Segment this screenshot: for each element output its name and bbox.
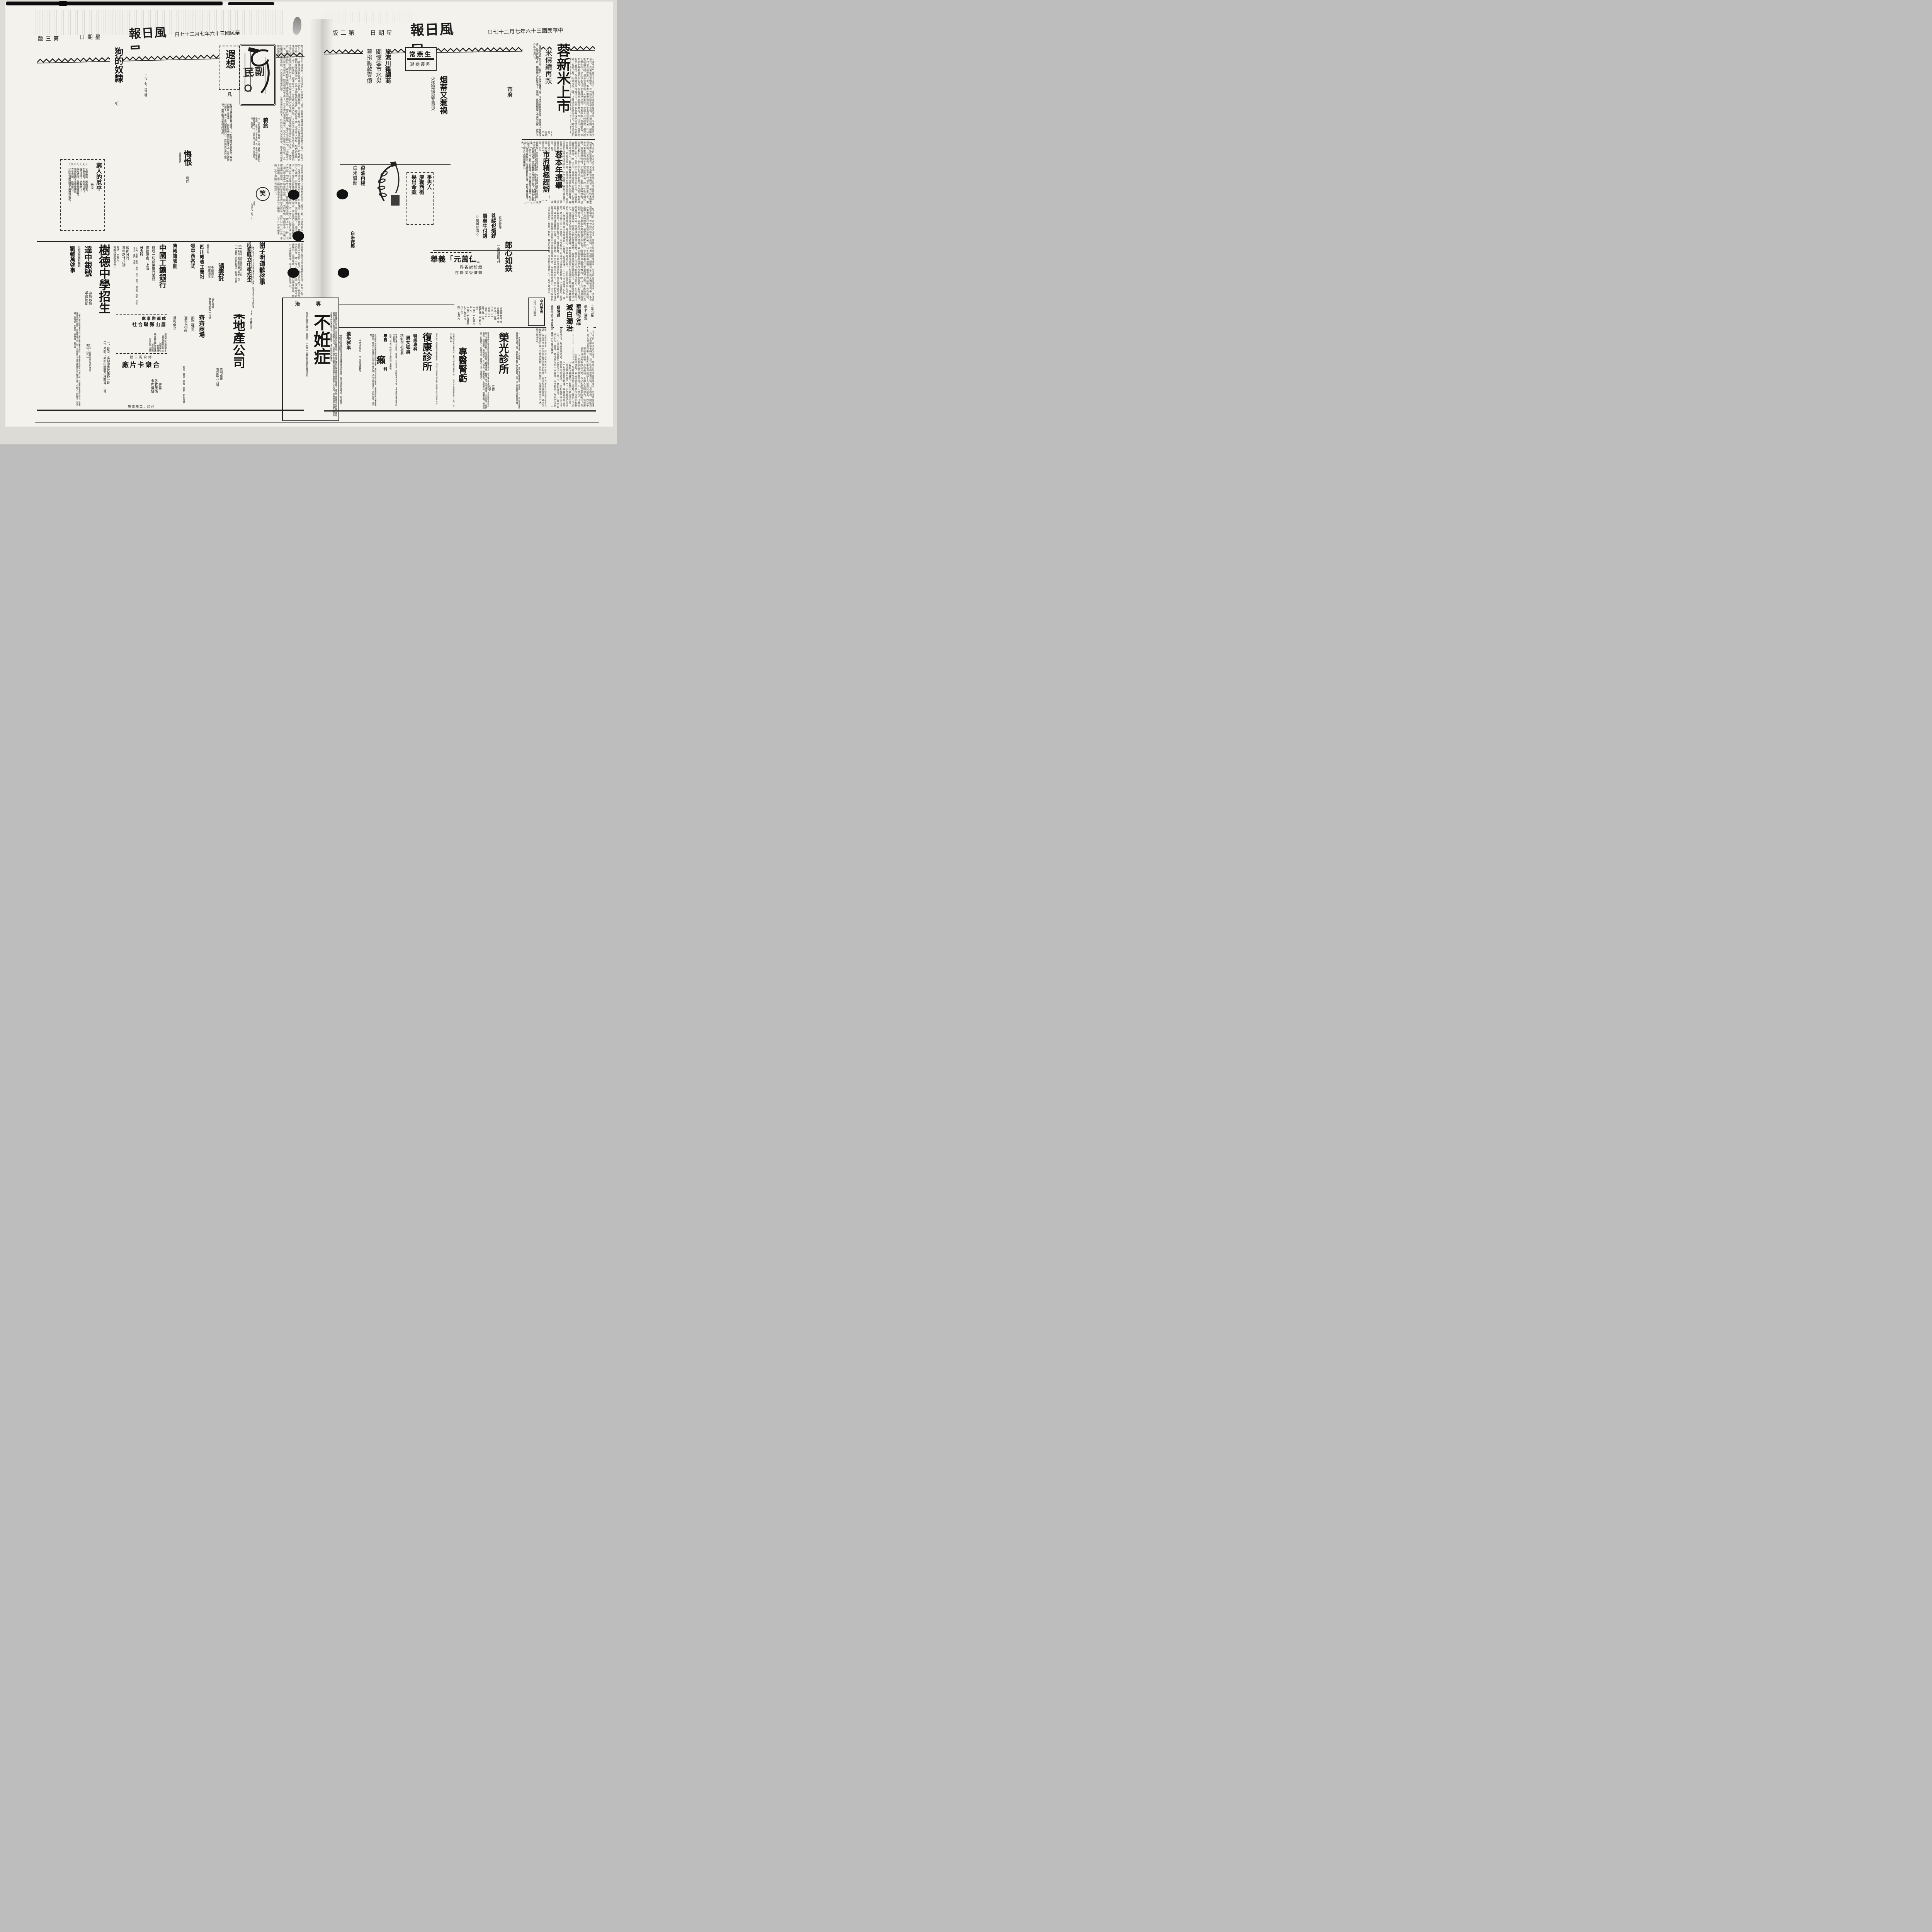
lost-notice-title: 遺失啓事 (342, 332, 351, 370)
page-number-left-text: 版三第 (38, 36, 61, 42)
cimb-branches-label: 分支行 (138, 246, 143, 269)
county-school-title: 成都縣立中學招生 (242, 242, 251, 315)
qiqi-mall-title: 齊齊商場 (196, 315, 205, 359)
fukang-clinic-title: 復康診所 (420, 332, 432, 410)
essay-author: 凡 (225, 92, 232, 101)
supplement-logo: 民副 (240, 44, 276, 106)
dazhong-bank-address: 行址：總府街拾號附壹號 電話：四六一 (80, 344, 91, 406)
punch-hole (337, 189, 348, 199)
murder-story-box: 爭男人 廖雲西街 幾出命案 (406, 172, 434, 225)
lai-ad-address: 中西順城街一二七號伯康醫院 (355, 339, 361, 407)
medicine-ad-sellers: 總府街太平洋大藥房 鹽市口生生大藥房 (546, 305, 553, 406)
infertility-ad-title: 不姙症 (308, 314, 330, 409)
kidney-ad-prices: 元轉強砂丸每瓶九千元每打六瓶外購樂加一 九包全愈此每包一千元 古方白帶丹 (447, 333, 454, 409)
lai-ad-label-2: 科 (381, 367, 387, 376)
scan-smudge-blob (58, 1, 68, 6)
essay-body: 斜陽塗抹着黃昏的殘塔，人影兒與塔影兒相伴。無雲的獨自立在江干，塔影兒不閃悄然在江… (209, 104, 232, 162)
dazhong-bank-title: 達中銀號 (80, 246, 92, 285)
liu-notice-title: 劉輔萬啓事 (66, 246, 75, 310)
liu-notice-body: 一種凡患牙腰腎漏五症，漏症無不藥到病除，其治漏症為敝人特為介紹，凡患斯疾者渴往試… (65, 312, 80, 406)
rongguang-clinic-title: 榮光診所 (495, 332, 509, 410)
meishan-coop-line1: 處事辦都成 (116, 315, 167, 321)
poor-list-box: 窮人的厄平 禾戈 1、米價高漲，米蟲鬧重。 2、大雨連天，水災益患！ 3、瘟疫流… (60, 159, 105, 231)
meishan-coop-line2: 社合聯縣山眉 (116, 321, 167, 328)
punch-hole (338, 268, 349, 278)
medicine-ad-seller-label: 經售處 (554, 305, 560, 333)
lead-story-body: 【建國社訊】蓉市昨（廿六）日米價繼續下挫，北市已有新米登場，致各商人競相拋售，惟… (522, 43, 541, 138)
page-number-left: 版三第 (38, 35, 69, 42)
infertility-ad-body: 育敏醫師已得小孩九個並在蓉治愈無算症，所現存之像片及酬謝物品等即為證見。衆治男女… (328, 312, 337, 417)
apology-title: 謝子明道歉啓事 (254, 242, 265, 311)
lang-headline: 郎心如鉄 (501, 241, 512, 284)
qiqi-mall-line3: 夏季用品 (181, 316, 187, 353)
lead-subheadline: 米價續再跌 (541, 49, 552, 131)
masthead-right-title: 報日風民 (410, 21, 454, 47)
dog-essay-author: 虹 (113, 101, 119, 110)
murder-headline-3: 幾出命案 (409, 175, 416, 209)
rule-under-lead (522, 139, 595, 140)
laugh-signature: 小琪 一九四七，五，十 (246, 201, 255, 236)
charity-line-2: 界各說紛紛 (430, 264, 483, 270)
obituary-name: 常燕生 (407, 49, 434, 60)
supplement-logo-label: 民副 (244, 63, 265, 79)
poor-list-title: 窮人的厄平 (94, 162, 102, 213)
submission-body: 一、凡反映現實之雜感、小品、詩歌、漫畫均所歡迎。文字以八百字為限。二、來稿一經登… (235, 117, 260, 163)
ledger-ad-col1: 發中西各式 (186, 243, 195, 307)
rice-headline: 白米微鬆 (349, 165, 357, 209)
election-body: 都市政府本年度選舉，原擬定七月外個區保長及區民代表，與區長至八月始辦之際，本市因… (506, 148, 536, 202)
masthead-right: 報日風民 (410, 18, 457, 47)
fukang-side-note: 本所為了便利貧病起見各科一律特別減收掛號金半價優待辦法詳詢本所 (432, 333, 437, 409)
scan-noise-right-top (325, 12, 417, 23)
rule-above-prices (338, 304, 454, 304)
rule-right-bottom (324, 410, 596, 412)
cimb-hq: 總管理處：上海 (143, 246, 149, 292)
infertility-ad-footer: 每日七鐘至五鐘止 西御街一一七號中央電影院隔壁彭鉄珊診所 (292, 312, 308, 417)
hosiery-ad: 襪衫俱全 (169, 316, 176, 353)
yu-side-note: 長省會專 (496, 216, 502, 245)
rule-right-low (433, 250, 549, 251)
meishan-coop-ad: 處事辦都成 社合聯縣山眉 運到大批松柴開水 暑期間售完為止 減價犧牲 壹萬梱 機… (116, 314, 167, 352)
bottom-edge-shadow (35, 422, 599, 423)
scan-smudge-topbar (6, 2, 223, 5)
shude-school-details: 一、班次：高初中男女生各一班 二、考期：高初中國曆八月四日、六日 (94, 341, 110, 406)
jiye-side4: 信用卓著 電話四八八號 (212, 368, 223, 406)
oil-headline: 菜油再楊 (357, 165, 365, 209)
laugh-badge-char: 笑 (260, 190, 266, 197)
fox-ad-title-2: 男女狐臭 (403, 335, 410, 372)
card-factory-footer: 廉價精工：印代 (116, 405, 167, 409)
jiye-side2: 公司地址 海會寺街四一八號 (205, 298, 214, 343)
essay-title: 遐想 (224, 49, 235, 86)
liu-notice-intro: 介紹漏症特科醫師 (75, 246, 80, 315)
society-notice-title: 今作學會 (537, 299, 543, 323)
grain-seal-emblem (371, 161, 404, 208)
rule-right-mid (340, 164, 451, 165)
card-factory-title: 廠片卡衆合 (116, 359, 167, 369)
jiye-side1: 手續週到 辦事徹底 (205, 266, 214, 294)
card-factory-body: 專售 各式美術 卡片請帖 (121, 374, 162, 398)
lead-headline: 蓉新米上市 (552, 43, 570, 140)
essay-title-box: 遐想 (219, 46, 240, 90)
cigarette-subheadline: 火炮聲振屋瓦巨災 (426, 77, 435, 131)
obituary-box: 常燕生 逝病晨昨 (405, 47, 437, 71)
weekday-left-text: 日期星 (80, 34, 103, 40)
cimb-chengdu-branch: 成都分行 青年路廿八號 (119, 246, 129, 300)
jiye-entrust: 請委託 (214, 263, 224, 295)
weekday-right: 日期星 (370, 29, 396, 36)
poor-list-author: 禾戈 (88, 183, 94, 197)
punch-hole (293, 231, 304, 241)
qiqi-mall-line2: 航空運到 (188, 316, 194, 353)
fox-ad-time: 時間：午前八時起至午後四鐘止屋照常 (386, 334, 391, 407)
rongguang-side-label: 五特 大點 (489, 385, 495, 408)
card-factory-addr: 號三街府總 (116, 355, 167, 359)
medicine-ad-line4: 滅白濁治 (563, 304, 573, 362)
weekday-left: 日期星 (80, 33, 104, 40)
infertility-ad-box: 治 專 不姙症 育敏醫師已得小孩九個並在蓉治愈無算症，所現存之像片及酬謝物品等即… (282, 298, 339, 421)
page-number-right-text: 版二第 (332, 29, 357, 36)
sichuan-works-district: 春熙西段 (204, 244, 209, 267)
cigarette-headline: 烟蒂又惹禍 (435, 76, 447, 126)
obituary-sub: 逝病晨昨 (406, 61, 436, 67)
weekday-right-text: 日期星 (370, 29, 395, 36)
silk-headline-1: 旅滬川籍綢商 (382, 49, 391, 121)
ledger-ad-col2: 售帳簿表冊 (168, 243, 177, 307)
election-headline-2: 市府積極趕辦 (538, 151, 549, 200)
cimb-services: 辦理一切商業銀行業務 (149, 246, 155, 306)
buddha-headline-2: 買藥牛付錢 (479, 213, 487, 262)
punch-hole (287, 268, 299, 278)
serial-note: （中篇連載） (176, 151, 181, 180)
card-factory-ad: 號三街府總 廠片卡衆合 專售 各式美術 卡片請帖 廉價精工：印代 (116, 353, 167, 410)
fox-ad-body: 痔瘡肛瘺刀圭結紮，無痛苦一次全愈一次除根永不再發，血管瘤粉瘤各種外科手術精良。 (392, 334, 397, 407)
serial-title: 悔恨 (180, 150, 193, 175)
kidney-ad-body: 啓者腎虧之病皆由犯手淫過多或誤不早治，若不乘治百病叢生，不但無有快樂之日，而且壽… (467, 332, 489, 410)
murder-headline-1: 爭男人 (424, 175, 431, 198)
dog-essay-title: 狗的奴隸 (110, 47, 123, 98)
serial-author: 劍煃 (183, 176, 189, 188)
society-notice-box: 今作學會 八月一日成立 (528, 298, 545, 326)
page-number-right: 版二第 (332, 29, 361, 36)
silk-headline-3: 募捐賑款壹億 (363, 49, 372, 121)
scan-smudge-topbar2 (228, 2, 274, 5)
punch-hole (288, 190, 299, 200)
society-notice-sub: 八月一日成立 (531, 299, 536, 323)
cimb-telephone: 電話 三九六 電報掛號四零三三 (111, 246, 119, 311)
charity-line-3: 民居災受濟賑 (430, 270, 483, 274)
buddha-column-label: ◇錦城拾零◇ (472, 215, 479, 260)
rice-market-headline: 白米微鬆 (348, 231, 355, 262)
lai-ad-label-1: 專醫 (380, 334, 387, 351)
cimb-title: 中國工鑛銀行 (155, 244, 166, 308)
buddha-headline-1: 菩薩也愛鈔 (487, 213, 495, 262)
essay-signature: 三六，七，望江樓 (141, 73, 147, 118)
dazhong-bank-body: 存款放款 手續簡便 (81, 291, 92, 340)
infertility-ad-header: 治 專 (283, 300, 338, 307)
newspaper-scan: 報日風民 日七十二月七年六十三國民華中 日期星 版二第 報日風民 日七十二月七年… (0, 0, 617, 444)
date-left-text: 日七十二月七年六十三國民華 (175, 31, 240, 38)
submission-title: 稿約 (260, 117, 268, 133)
medicine-ad-line2: 新老白濁 (581, 304, 587, 347)
medicine-ad-line1: 上海出品 (588, 304, 594, 332)
lai-ad-body: 新發明神效藥能治萬年久病不愈者，專診治如數次即愈，身體健康大有害即本陸特效，若有… (362, 334, 376, 408)
shude-school-title: 樹德中學招生 (94, 244, 110, 338)
meishan-coop-body: 運到大批松柴開水 暑期間售完為止 減價犧牲 壹萬梱 機會難得購者從速 以免向隅 … (117, 328, 166, 352)
rule-left-bottom (37, 410, 304, 411)
date-right-text: 日七十二月七年六十三國民華中 (488, 27, 563, 36)
murder-headline-2: 廖雲西街 (417, 175, 423, 209)
fox-ad-title-1: 特設專科 (410, 334, 417, 371)
laugh-column-badge: 笑 (256, 187, 270, 201)
rongguang-list: 一、白濁新藥治療三日痊癒，二、魚口下疳靈桃立刻止痛，三、腎虧夢遺梅毒負責治癒，四… (509, 332, 520, 410)
poor-list-items: 1、米價高漲，米蟲鬧重。 2、大雨連天，水災益患！ 3、瘟疫流行，施醫者少。 4… (63, 162, 87, 228)
sichuan-works-title: 四川帳表工業社 (195, 244, 204, 312)
lai-ad-big-char: 癩 (376, 352, 388, 366)
kidney-ad-title: 專醫腎虧 (454, 347, 467, 409)
fox-ad-title-3: 精制包皮過長 (397, 334, 403, 379)
silk-headline-2: 關懷蓉市水災 (372, 49, 382, 121)
city-gov-kicker: 市府 (503, 87, 512, 108)
election-headline-1: 蓉本年選舉 (550, 151, 563, 200)
county-school-details: 【一】班次：高初中新生各一班 【二】考試：高初中國曆八月十一日 【三】日期：即日… (231, 243, 242, 314)
medicine-ad-line3: 華勝之品 (573, 304, 581, 354)
cimb-branch-cities: 上海 重慶 南京 廣州 長沙 漢口 自貢市 西安 昆明 青島 廈門 寶雞 (129, 247, 138, 305)
market-price-band: △五萬九千元 △五萬七千元 △九十二元 ×八十元 △三十元 △四十元 肚子絲（兩… (340, 306, 502, 326)
qiqi-mall-cities: 雅安 西昌 榮經 昆明 新街九號 (179, 366, 185, 406)
